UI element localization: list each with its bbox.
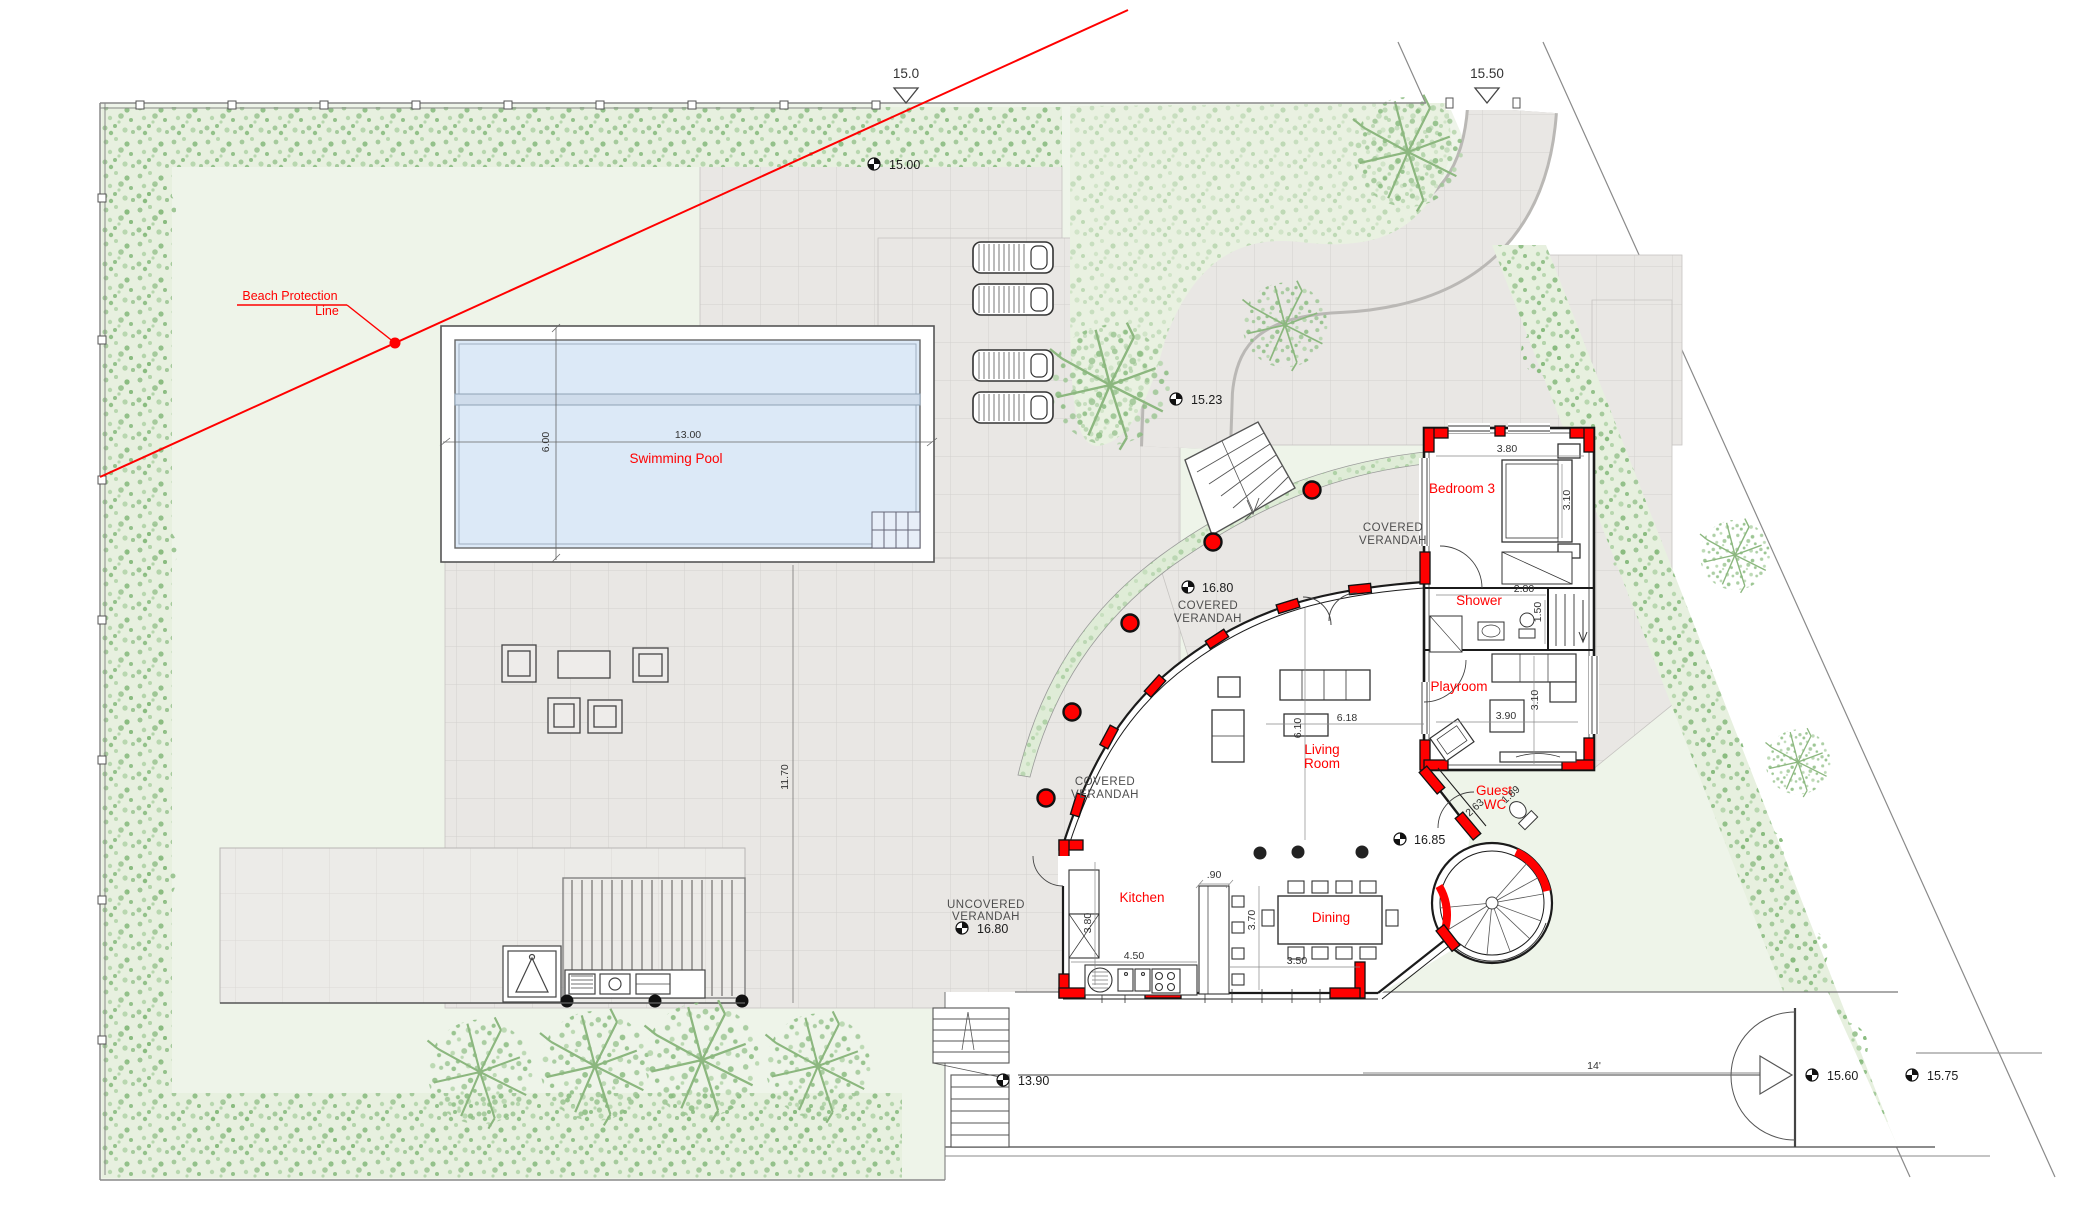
floor-plan-canvas: Beach Protection Line 15.0 15.50 15.00 1… — [0, 0, 2100, 1214]
shower-w-dim: 2.80 — [1514, 583, 1535, 595]
spot-level-beach-stair: 13.90 — [1018, 1074, 1049, 1088]
pool-steps — [872, 512, 920, 548]
bedroom3-label: Bedroom 3 — [1429, 481, 1495, 496]
kitchen-island-dim: .90 — [1207, 869, 1222, 881]
covered-verandah-2-line1: COVERED — [1178, 600, 1238, 612]
datum-label-gate: 15.50 — [1470, 66, 1504, 81]
dining-d-dim: 3.70 — [1246, 910, 1258, 931]
spot-level-lawn: 15.00 — [889, 158, 920, 172]
shower-label: Shower — [1456, 593, 1502, 608]
swimming-pool — [440, 324, 937, 562]
datum-triangle-15-0 — [894, 88, 918, 103]
column — [1292, 846, 1305, 859]
site-plan-drawing: Beach Protection Line 15.0 15.50 15.00 1… — [0, 0, 2100, 1214]
kitchen-label: Kitchen — [1119, 890, 1164, 905]
bedroom3-w-dim: 3.80 — [1497, 443, 1518, 455]
beach-protection-label-line2: Line — [315, 304, 339, 318]
deck-post — [736, 995, 749, 1008]
pool-width-dim: 6.00 — [540, 432, 552, 453]
beach-protection-label-line1: Beach Protection — [242, 289, 337, 303]
spot-level-entry: 15.60 — [1827, 1069, 1858, 1083]
living-w-dim: 6.18 — [1337, 712, 1358, 724]
spot-level-court: 16.85 — [1414, 833, 1445, 847]
bedroom3-d-dim: 3.10 — [1561, 490, 1573, 511]
covered-verandah-2-line2: VERANDAH — [1174, 613, 1242, 625]
shower-d-dim: 1.50 — [1532, 602, 1544, 623]
spot-level-road: 15.75 — [1927, 1069, 1958, 1083]
dining-w-dim: 3.50 — [1287, 955, 1308, 967]
spot-level-uncovered: 16.80 — [977, 922, 1008, 936]
dining-label: Dining — [1312, 910, 1350, 925]
living-room-label-line1: Living — [1304, 742, 1339, 757]
covered-verandah-3-line2: VERANDAH — [1071, 789, 1139, 801]
uncovered-verandah-line1: UNCOVERED — [947, 899, 1025, 911]
column — [1254, 847, 1267, 860]
outdoor-shower-pad — [503, 946, 561, 1002]
playroom-d-dim: 3.10 — [1529, 690, 1541, 711]
deck-post — [561, 995, 574, 1008]
datum-label-top: 15.0 — [893, 66, 919, 81]
spot-level-verandah: 16.80 — [1202, 581, 1233, 595]
kitchen-w-dim: 4.50 — [1124, 950, 1145, 962]
uncovered-verandah-line2: VERANDAH — [952, 911, 1020, 923]
deck-area — [220, 848, 749, 1008]
swimming-pool-label: Swimming Pool — [629, 451, 722, 466]
covered-verandah-1-line2: VERANDAH — [1359, 535, 1427, 547]
playroom-w-dim: 3.90 — [1496, 710, 1517, 722]
deck-post — [649, 995, 662, 1008]
slope-label: 14' — [1587, 1060, 1601, 1072]
patio-dim: 11.70 — [779, 764, 791, 790]
bbq-counter — [565, 970, 705, 998]
wardrobe — [1502, 552, 1572, 584]
spot-level-driveway: 15.23 — [1191, 393, 1222, 407]
column — [1356, 846, 1369, 859]
kitchen-d-dim: 3.80 — [1082, 913, 1094, 934]
playroom-label: Playroom — [1430, 679, 1487, 694]
hedge-left — [102, 107, 178, 1175]
covered-verandah-3-line1: COVERED — [1075, 776, 1135, 788]
covered-verandah-1-line1: COVERED — [1363, 522, 1423, 534]
living-room-label-line2: Room — [1304, 756, 1340, 771]
pool-length-dim: 13.00 — [675, 429, 701, 441]
living-d-dim: 6.10 — [1292, 718, 1304, 739]
